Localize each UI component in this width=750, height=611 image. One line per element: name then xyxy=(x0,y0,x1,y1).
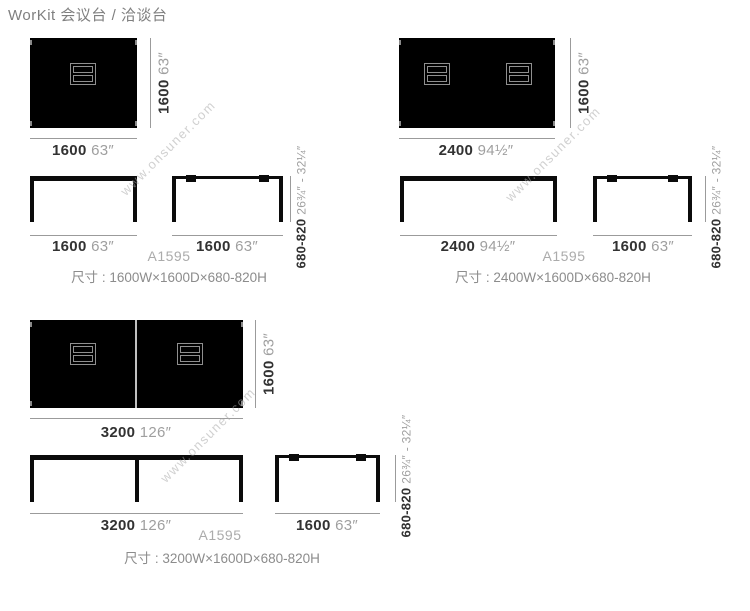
leg-mark-icon xyxy=(135,40,137,45)
model-number: A1595 xyxy=(199,527,242,543)
size-specification: 尺寸 : 3200W×1600D×680-820H xyxy=(124,547,320,567)
dimension-line xyxy=(593,235,692,236)
side-width-dimension: 1600 63″ xyxy=(296,517,358,534)
model-number: A1595 xyxy=(543,248,586,264)
cable-port-icon xyxy=(506,63,532,85)
height-dimension: 680-820 26¾″ - 32¼″ xyxy=(709,146,724,269)
dimension-line xyxy=(275,513,380,514)
leg-mark-icon xyxy=(241,322,243,327)
table-side-elevation xyxy=(593,176,692,222)
cable-port-icon xyxy=(70,343,96,365)
dimension-line xyxy=(400,235,557,236)
leg-mark-icon xyxy=(30,121,32,126)
page-title: WorKit 会议台 / 洽谈台 xyxy=(8,4,167,25)
tabletop-plan-view xyxy=(30,320,243,408)
dimension-line xyxy=(395,455,396,502)
front-width-dimension: 3200 126″ xyxy=(101,517,172,534)
height-dimension: 680-820 26¾″ - 32¼″ xyxy=(399,415,414,538)
dimension-line xyxy=(30,138,137,139)
plan-width-dimension: 2400 94½″ xyxy=(439,142,514,159)
dimension-line xyxy=(30,418,243,419)
dimension-line xyxy=(705,176,706,222)
dimension-line xyxy=(290,176,291,222)
front-width-dimension: 2400 94½″ xyxy=(441,238,516,255)
tabletop-plan-view xyxy=(30,38,137,128)
side-width-dimension: 1600 63″ xyxy=(612,238,674,255)
side-width-dimension: 1600 63″ xyxy=(196,238,258,255)
leg-mark-icon xyxy=(30,40,32,45)
cable-port-icon xyxy=(70,63,96,85)
tabletop-join-line xyxy=(135,320,137,408)
dimension-line xyxy=(150,38,151,128)
dimension-line xyxy=(30,235,137,236)
tabletop-plan-view xyxy=(399,38,555,128)
plan-width-dimension: 1600 63″ xyxy=(52,142,114,159)
dimension-line xyxy=(30,513,243,514)
size-specification: 尺寸 : 1600W×1600D×680-820H xyxy=(71,266,267,286)
dimension-line xyxy=(399,138,555,139)
cable-port-icon xyxy=(424,63,450,85)
dimension-line xyxy=(172,235,283,236)
table-side-elevation xyxy=(172,176,283,222)
front-width-dimension: 1600 63″ xyxy=(52,238,114,255)
dimension-line xyxy=(570,38,571,128)
plan-width-dimension: 3200 126″ xyxy=(101,424,172,441)
leg-mark-icon xyxy=(30,401,32,406)
leg-mark-icon xyxy=(135,121,137,126)
leg-mark-icon xyxy=(30,322,32,327)
model-number: A1595 xyxy=(148,248,191,264)
plan-depth-dimension: 1600 63″ xyxy=(156,52,173,114)
cable-port-icon xyxy=(177,343,203,365)
leg-mark-icon xyxy=(399,121,401,126)
size-specification: 尺寸 : 2400W×1600D×680-820H xyxy=(455,266,651,286)
table-front-elevation xyxy=(30,455,243,502)
plan-depth-dimension: 1600 63″ xyxy=(261,333,278,395)
leg-mark-icon xyxy=(399,40,401,45)
table-side-elevation xyxy=(275,455,380,502)
leg-mark-icon xyxy=(553,40,555,45)
leg-mark-icon xyxy=(553,121,555,126)
spec-sheet: WorKit 会议台 / 洽谈台 1600 63″ 1600 63″ xyxy=(0,0,750,611)
height-dimension: 680-820 26¾″ - 32¼″ xyxy=(294,146,309,269)
